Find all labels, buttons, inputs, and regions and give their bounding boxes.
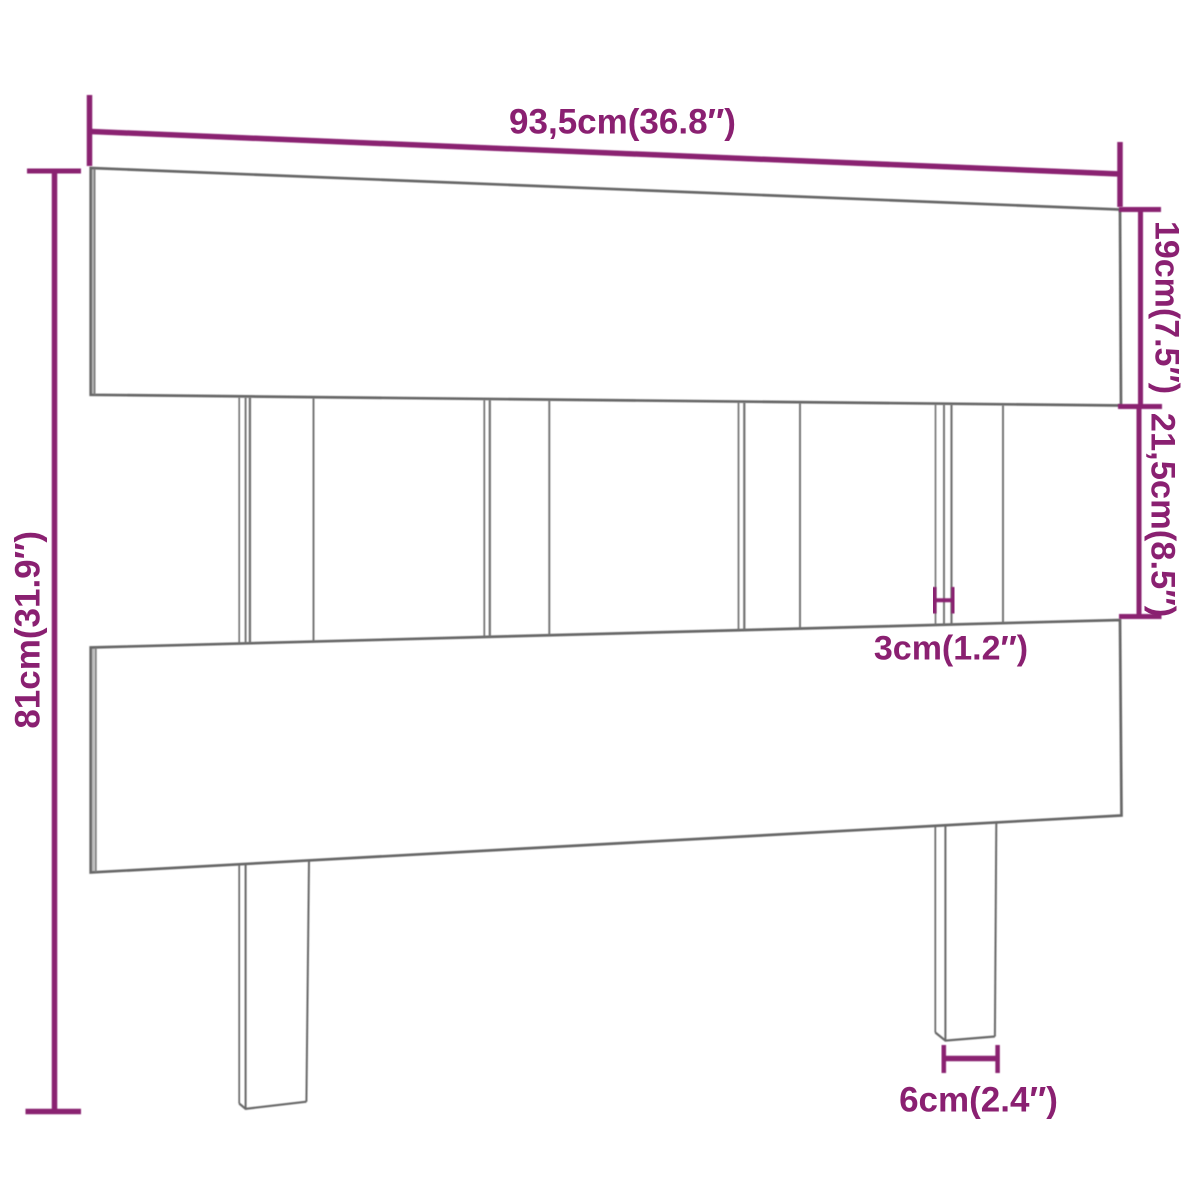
svg-text:19cm(7.5″): 19cm(7.5″) [1148, 221, 1186, 394]
svg-text:81cm(31.9″): 81cm(31.9″) [8, 531, 47, 729]
svg-text:93,5cm(36.8″): 93,5cm(36.8″) [509, 103, 736, 142]
svg-text:6cm(2.4″): 6cm(2.4″) [899, 1081, 1058, 1120]
svg-text:3cm(1.2″): 3cm(1.2″) [874, 630, 1028, 668]
svg-text:21,5cm(8.5″): 21,5cm(8.5″) [1143, 413, 1181, 617]
